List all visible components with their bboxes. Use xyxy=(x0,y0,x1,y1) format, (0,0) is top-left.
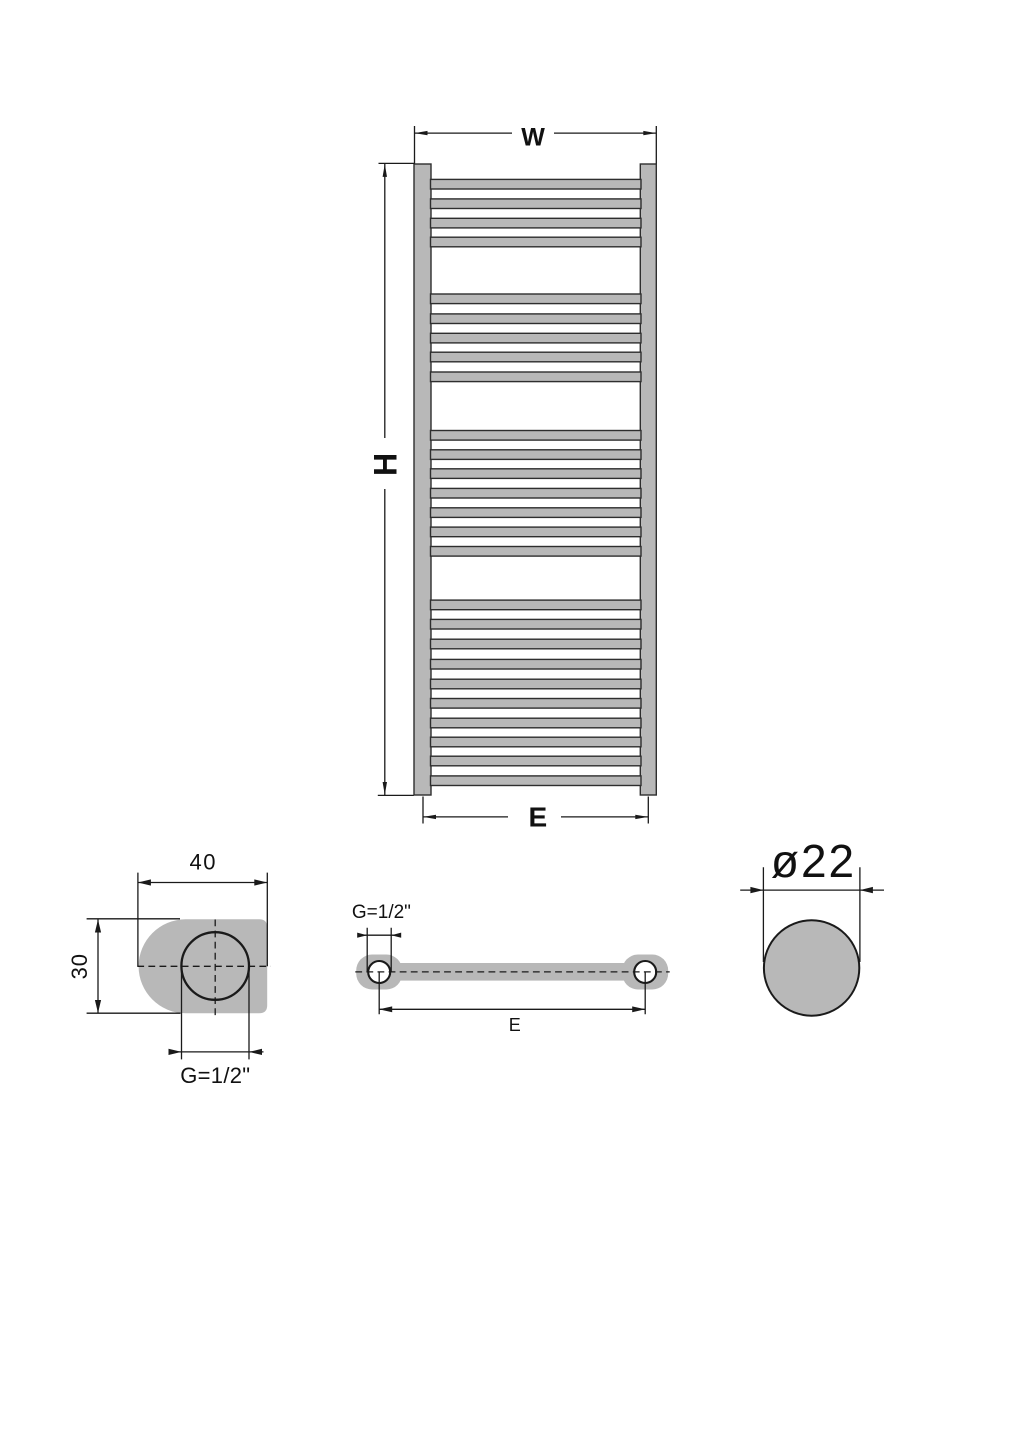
svg-text:E: E xyxy=(528,802,547,833)
svg-text:H: H xyxy=(367,453,403,476)
svg-text:ø22: ø22 xyxy=(771,835,856,887)
svg-text:G=1/2": G=1/2" xyxy=(180,1063,250,1088)
svg-text:40: 40 xyxy=(189,850,217,875)
svg-text:E: E xyxy=(509,1015,521,1035)
svg-text:W: W xyxy=(521,123,545,151)
svg-text:G=1/2": G=1/2" xyxy=(352,902,411,923)
svg-text:30: 30 xyxy=(67,953,92,979)
